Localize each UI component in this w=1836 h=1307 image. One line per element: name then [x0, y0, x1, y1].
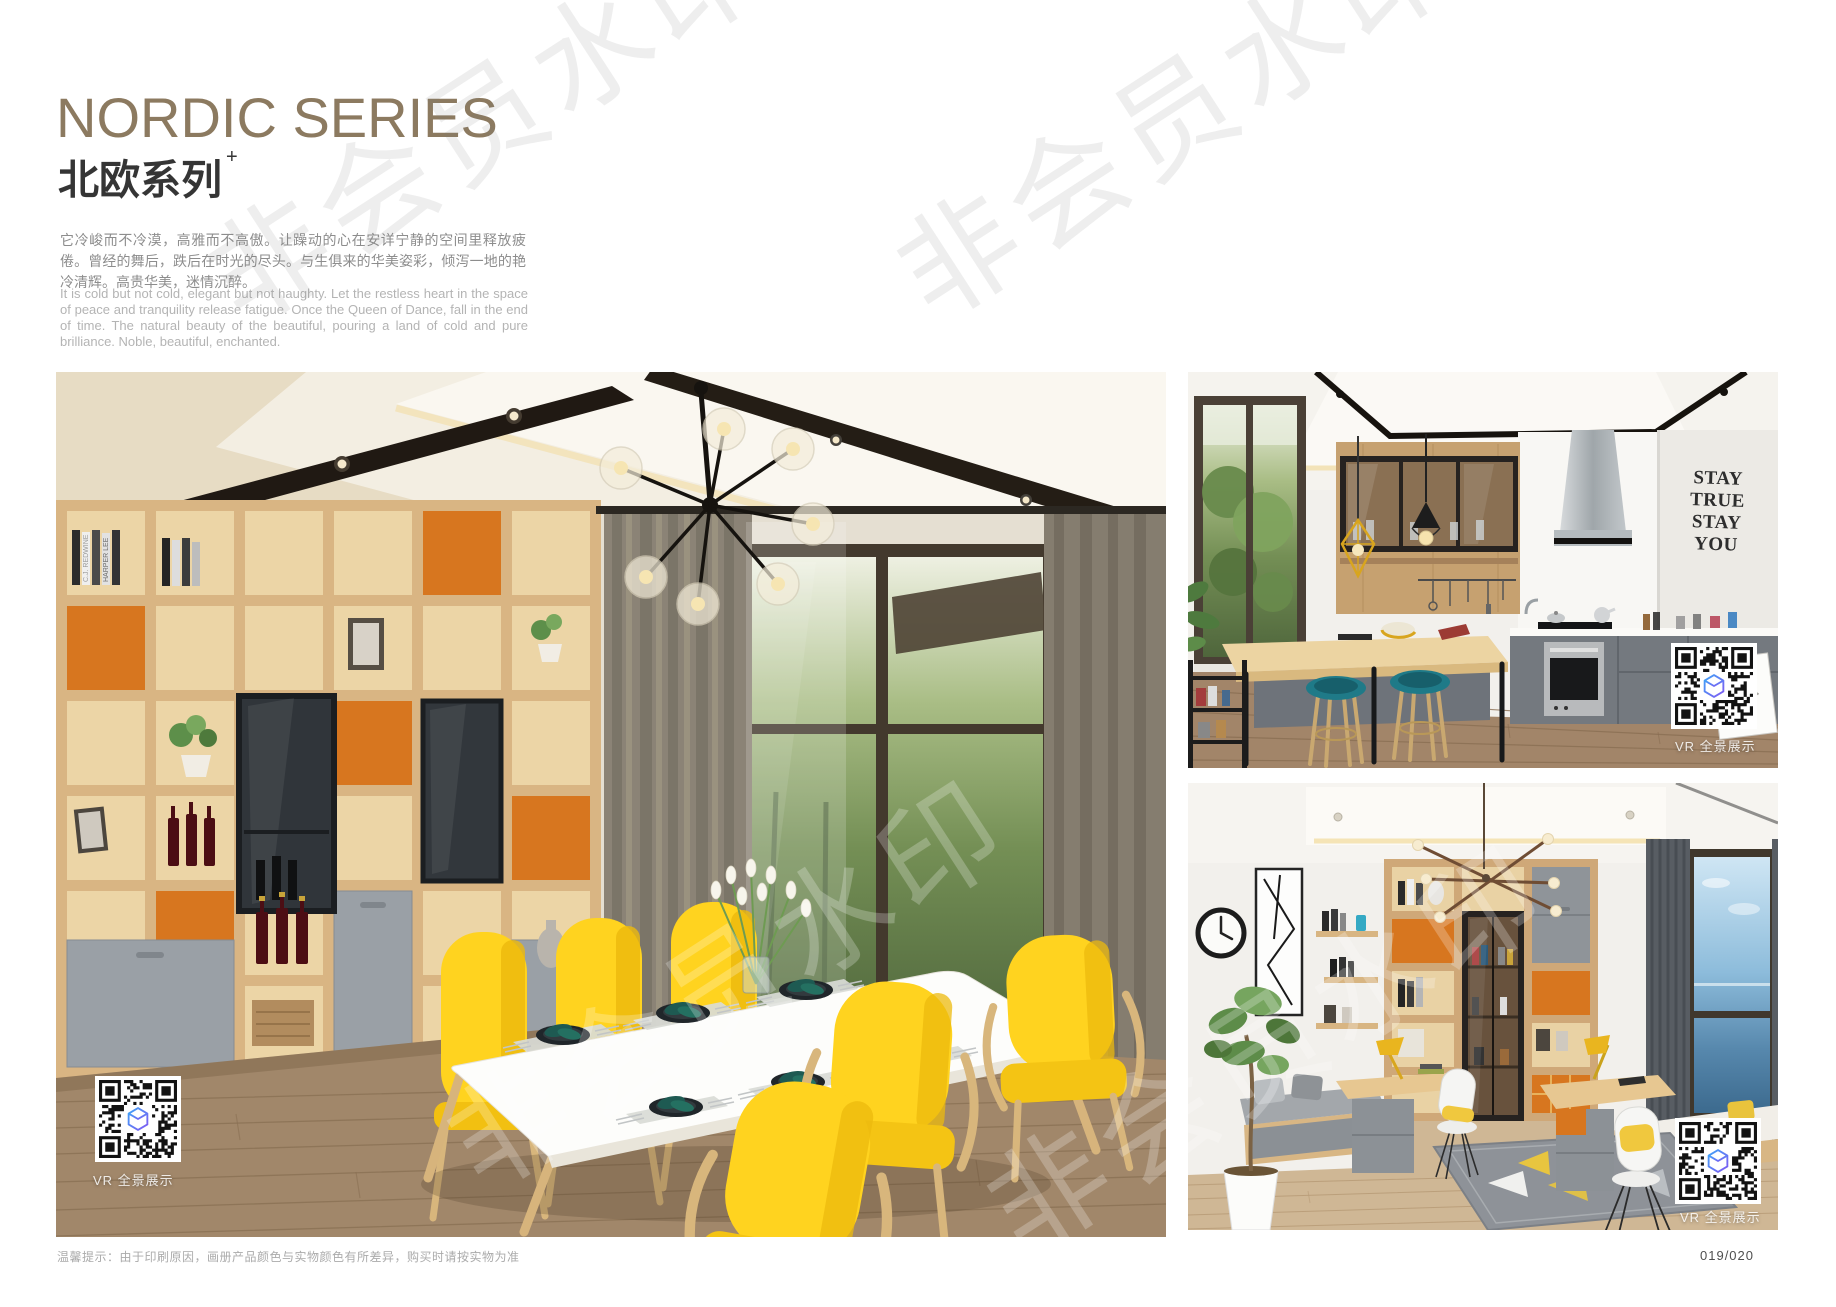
vr-panorama-label: VR 全景展示 [1680, 1207, 1761, 1226]
dining-room-photo: C.J. REDWINE HARPER LEE [56, 372, 1166, 1237]
svg-text:TRUE: TRUE [1690, 489, 1745, 512]
page-subtitle: 北欧系列+ [58, 160, 238, 201]
kitchen-window [1194, 396, 1306, 672]
qr-code-graphic [1675, 647, 1753, 725]
watermark: 非会员水印 [858, 0, 1488, 352]
catalog-page: NORDIC SERIES 北欧系列+ 它冷峻而不冷漠，高雅而不高傲。让躁动的心… [0, 0, 1836, 1307]
svg-text:YOU: YOU [1694, 533, 1738, 556]
kitchen-photo: STAY TRUE STAY YOU [1188, 372, 1778, 768]
svg-text:STAY: STAY [1692, 511, 1742, 534]
vr-qr-code [95, 1076, 181, 1162]
study-room-photo: VR 全景展示 [1188, 783, 1778, 1230]
vr-panorama-label: VR 全景展示 [1675, 736, 1756, 755]
svg-text:STAY: STAY [1693, 467, 1743, 490]
qr-code-graphic [99, 1080, 177, 1158]
svg-text:C.J. REDWINE: C.J. REDWINE [83, 534, 90, 582]
vr-panorama-label: VR 全景展示 [93, 1170, 174, 1189]
vr-qr-code [1675, 1118, 1761, 1204]
intro-paragraph-zh: 它冷峻而不冷漠，高雅而不高傲。让躁动的心在安详宁静的空间里释放疲倦。曾经的舞后，… [60, 230, 526, 293]
subtitle-text: 北欧系列 [58, 157, 222, 203]
wall-art-stay-true: STAY TRUE STAY YOU [1688, 467, 1746, 556]
svg-text:HARPER LEE: HARPER LEE [103, 537, 110, 582]
dining-room-illustration: C.J. REDWINE HARPER LEE [56, 372, 1166, 1237]
footer-note: 温馨提示：由于印刷原因，画册产品颜色与实物颜色有所差异，购买时请按实物为准 [57, 1248, 520, 1265]
qr-code-graphic [1679, 1122, 1757, 1200]
page-number: 019/020 [1700, 1248, 1754, 1263]
wall-clock [1198, 910, 1244, 956]
subtitle-plus: + [226, 146, 238, 168]
intro-paragraph-en: It is cold but not cold, elegant but not… [60, 286, 528, 350]
vr-qr-code [1671, 643, 1757, 729]
page-title: NORDIC SERIES [56, 90, 498, 146]
